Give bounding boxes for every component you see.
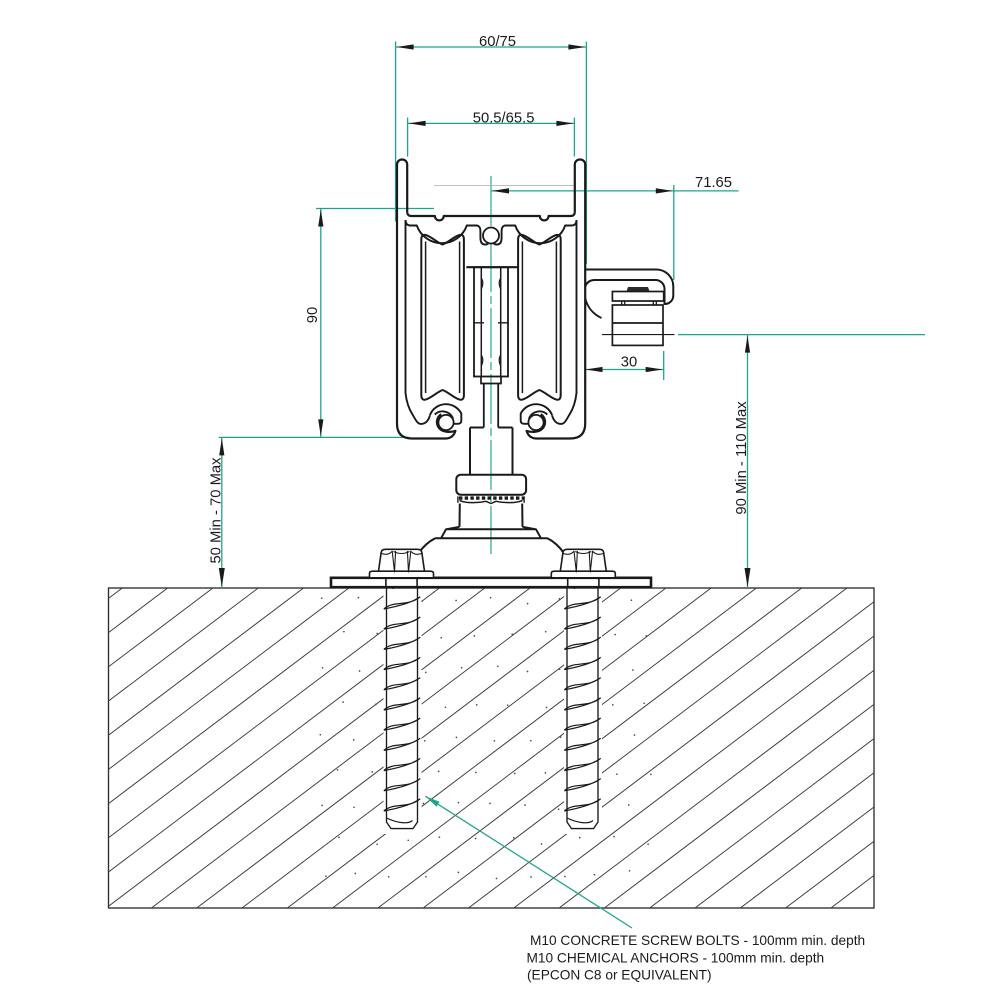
svg-text:(EPCON C8 or EQUIVALENT): (EPCON C8 or EQUIVALENT)	[527, 968, 712, 983]
svg-text:50.5/65.5: 50.5/65.5	[473, 110, 535, 126]
svg-text:71.65: 71.65	[695, 175, 732, 191]
svg-text:30: 30	[621, 355, 637, 371]
svg-text:50 Min - 70 Max: 50 Min - 70 Max	[208, 457, 224, 564]
svg-text:M10 CHEMICAL ANCHORS - 100mm m: M10 CHEMICAL ANCHORS - 100mm min. depth	[527, 950, 825, 965]
svg-text:60/75: 60/75	[479, 34, 516, 50]
svg-text:M10 CONCRETE SCREW BOLTS - 100: M10 CONCRETE SCREW BOLTS - 100mm min. de…	[530, 933, 865, 948]
svg-text:90: 90	[305, 307, 321, 323]
svg-text:90 Min - 110 Max: 90 Min - 110 Max	[734, 401, 750, 515]
